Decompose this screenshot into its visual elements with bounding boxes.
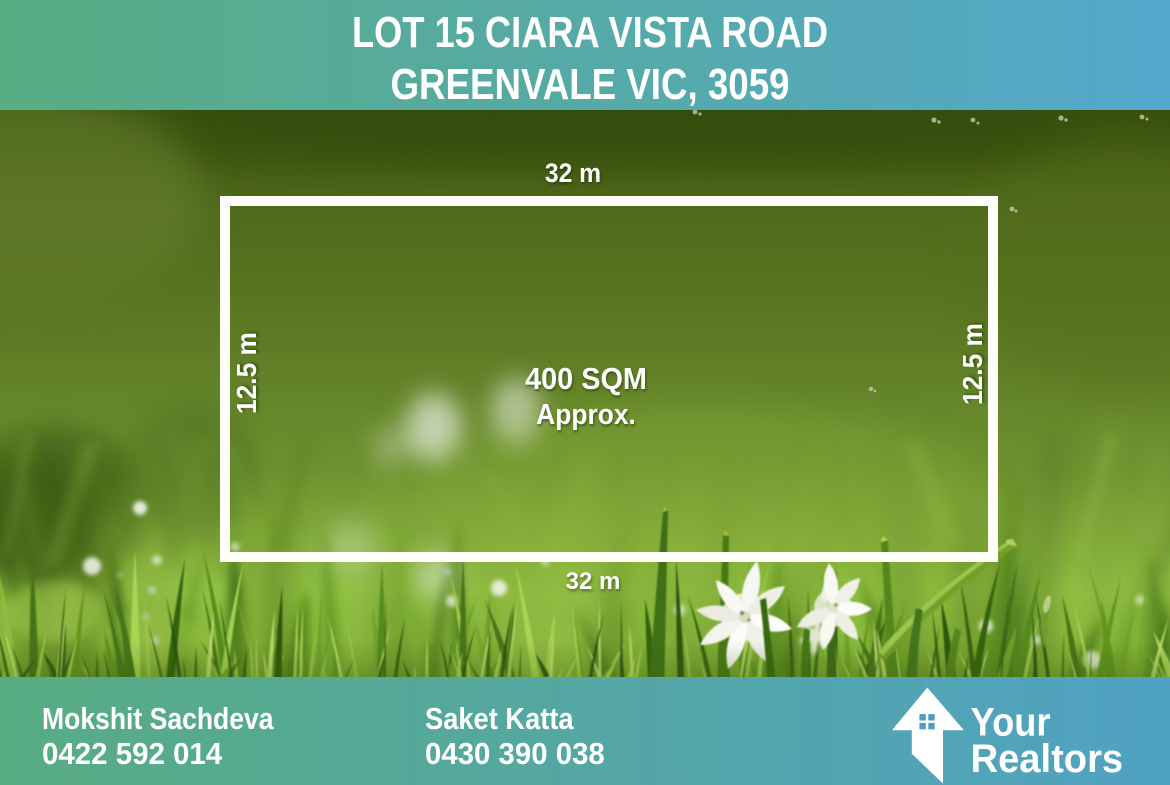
svg-text:Realtors: Realtors <box>971 737 1124 781</box>
